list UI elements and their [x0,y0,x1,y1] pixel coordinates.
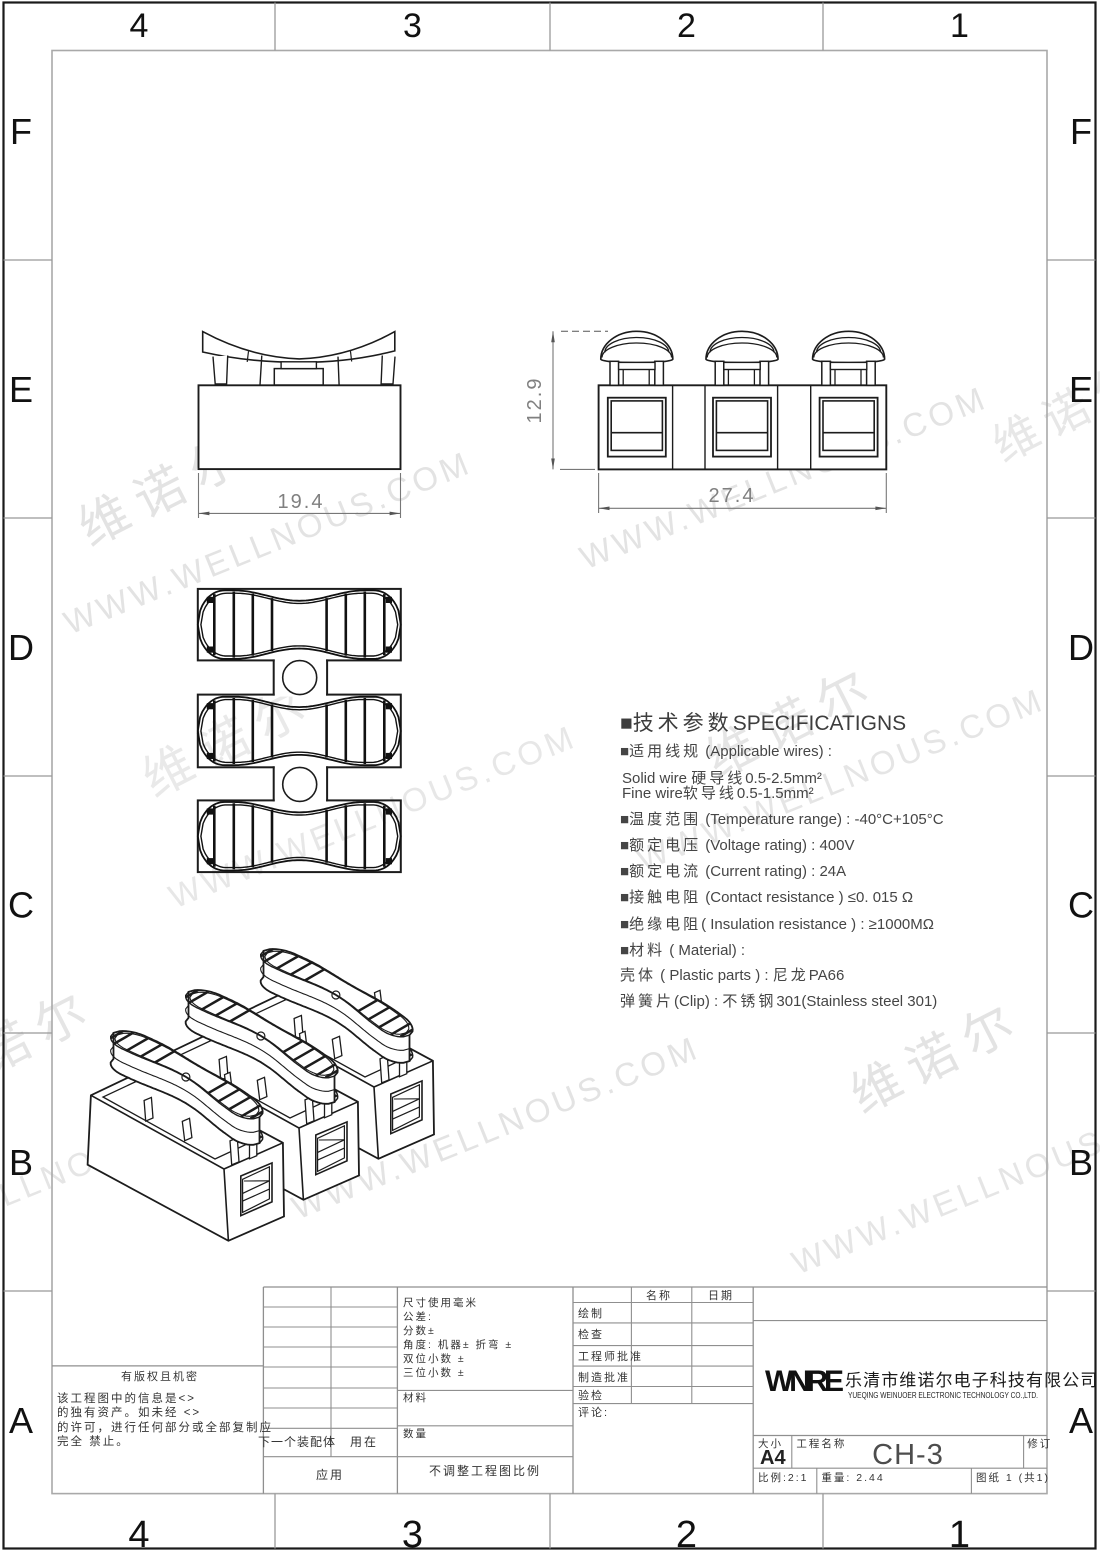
svg-text:日期: 日期 [708,1289,734,1302]
svg-text:工程师批准: 工程师批准 [578,1349,643,1363]
svg-text:应用: 应用 [316,1467,344,1482]
svg-text:B: B [9,1142,33,1183]
svg-text:有版权且机密: 有版权且机密 [121,1369,199,1383]
svg-text:1: 1 [949,1514,970,1552]
svg-text:■技术参数SPECIFICATIGNS: ■技术参数SPECIFICATIGNS [620,712,906,735]
svg-text:弹簧片(Clip) : 不锈钢301(Stainless s: 弹簧片(Clip) : 不锈钢301(Stainless steel 301) [620,993,937,1010]
svg-text:19.4: 19.4 [278,491,325,513]
svg-text:重量: 2.44: 重量: 2.44 [821,1471,884,1484]
svg-text:双位小数 ±: 双位小数 ± [403,1352,466,1365]
svg-text:C: C [8,885,34,926]
svg-text:YUEQING WEINUOER ELECTRONIC TE: YUEQING WEINUOER ELECTRONIC TECHNOLOGY C… [848,1391,1038,1400]
svg-text:■适用线规 (Applicable wires) :: ■适用线规 (Applicable wires) : [620,743,832,760]
svg-text:Fine wire软导线0.5-1.5mm²: Fine wire软导线0.5-1.5mm² [622,785,814,802]
svg-text:完全 禁止。: 完全 禁止。 [57,1434,130,1448]
svg-text:2: 2 [676,1514,697,1552]
svg-text:名称: 名称 [646,1288,672,1302]
svg-text:1: 1 [950,7,969,45]
svg-text:■接触电阻 (Contact resistance ) ≤0: ■接触电阻 (Contact resistance ) ≤0. 015 Ω [620,889,913,906]
svg-text:制造批准: 制造批准 [578,1370,630,1384]
svg-text:12.9: 12.9 [524,377,546,424]
svg-text:■材料 ( Material) :: ■材料 ( Material) : [620,942,745,959]
svg-text:图纸 1 (共1): 图纸 1 (共1) [976,1471,1050,1484]
svg-text:E: E [1069,369,1093,410]
svg-text:3: 3 [403,7,422,45]
svg-text:公差:: 公差: [403,1310,433,1323]
svg-text:WNRE: WNRE [765,1365,843,1398]
svg-text:下一个装配体: 下一个装配体 [258,1435,336,1449]
svg-text:E: E [9,369,33,410]
svg-text:2: 2 [677,7,696,45]
svg-text:检查: 检查 [578,1327,604,1341]
svg-text:三位小数 ±: 三位小数 ± [403,1366,466,1379]
svg-text:A4: A4 [760,1447,786,1469]
svg-text:壳体 ( Plastic parts ) : 尼龙PA66: 壳体 ( Plastic parts ) : 尼龙PA66 [620,967,844,984]
svg-text:用在: 用在 [350,1435,378,1449]
svg-text:角度: 机器± 折弯 ±: 角度: 机器± 折弯 ± [403,1338,513,1351]
svg-text:该工程图中的信息是<>: 该工程图中的信息是<> [57,1391,196,1405]
svg-text:3: 3 [402,1514,423,1552]
svg-text:数量: 数量 [403,1427,428,1440]
svg-text:A: A [1069,1400,1093,1441]
svg-text:不调整工程图比例: 不调整工程图比例 [429,1463,541,1478]
svg-text:尺寸使用毫米: 尺寸使用毫米 [403,1296,478,1309]
svg-text:D: D [8,627,34,668]
svg-text:工程名称: 工程名称 [796,1437,846,1450]
svg-text:4: 4 [128,1514,149,1552]
svg-text:乐清市维诺尔电子科技有限公司: 乐清市维诺尔电子科技有限公司 [845,1371,1098,1390]
svg-text:CH-3: CH-3 [872,1439,944,1471]
svg-text:27.4: 27.4 [709,485,756,507]
svg-text:验检: 验检 [578,1388,604,1402]
svg-text:■温度范围 (Temperature range) : -4: ■温度范围 (Temperature range) : -40°C+105°C [620,811,944,828]
svg-text:■额定电压 (Voltage rating) : 400V: ■额定电压 (Voltage rating) : 400V [620,837,855,854]
svg-text:■绝缘电阻( Insulation resistance ): ■绝缘电阻( Insulation resistance ) : ≥1000MΩ [620,916,934,933]
svg-text:的许可，进行任何部分或全部复制应: 的许可，进行任何部分或全部复制应 [57,1420,273,1434]
svg-text:修订: 修订 [1027,1437,1052,1450]
svg-text:D: D [1068,627,1094,668]
svg-text:材料: 材料 [403,1391,428,1404]
svg-text:B: B [1069,1142,1093,1183]
svg-text:比例:2:1: 比例:2:1 [758,1471,809,1484]
svg-text:评论:: 评论: [578,1405,609,1419]
svg-text:A: A [9,1400,33,1441]
svg-text:■额定电流 (Current rating) : 24A: ■额定电流 (Current rating) : 24A [620,863,846,880]
svg-text:分数±: 分数± [403,1324,436,1337]
svg-text:F: F [1070,111,1092,152]
svg-text:F: F [10,111,32,152]
svg-text:4: 4 [130,7,149,45]
svg-text:的独有资产。如未经 <>: 的独有资产。如未经 <> [57,1405,201,1419]
svg-text:绘制: 绘制 [578,1306,604,1320]
svg-text:C: C [1068,885,1094,926]
